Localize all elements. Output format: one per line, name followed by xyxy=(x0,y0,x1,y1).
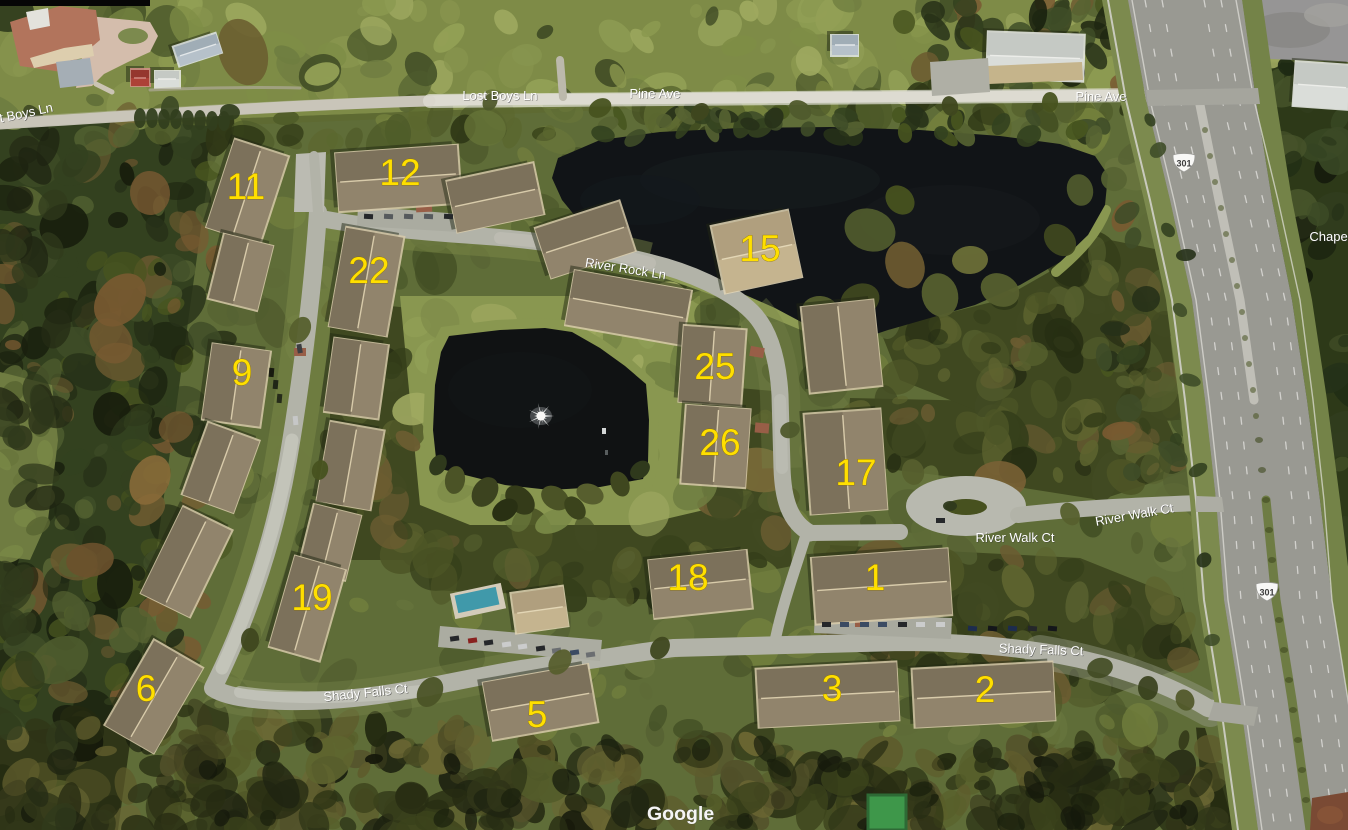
svg-text:5: 5 xyxy=(527,694,548,735)
svg-text:1: 1 xyxy=(865,557,886,598)
svg-text:Google: Google xyxy=(647,803,714,825)
svg-text:Pine Ave: Pine Ave xyxy=(629,86,680,101)
svg-text:26: 26 xyxy=(699,422,740,463)
svg-text:Chapel: Chapel xyxy=(1309,229,1348,244)
svg-text:Shady Falls Ct: Shady Falls Ct xyxy=(999,641,1084,659)
svg-text:River Walk Ct: River Walk Ct xyxy=(976,530,1055,545)
svg-text:12: 12 xyxy=(379,152,420,193)
svg-text:22: 22 xyxy=(348,250,389,291)
svg-text:Lost Boys Ln: Lost Boys Ln xyxy=(462,88,537,103)
svg-text:19: 19 xyxy=(291,577,332,618)
svg-text:301: 301 xyxy=(1176,159,1191,169)
svg-text:11: 11 xyxy=(227,166,265,207)
svg-text:15: 15 xyxy=(739,228,780,269)
svg-text:25: 25 xyxy=(694,346,735,387)
svg-text:2: 2 xyxy=(975,669,996,710)
svg-text:301: 301 xyxy=(1259,588,1274,598)
svg-text:18: 18 xyxy=(667,557,708,598)
svg-text:3: 3 xyxy=(822,668,843,709)
svg-text:17: 17 xyxy=(835,452,876,493)
svg-text:Pine Ave: Pine Ave xyxy=(1075,89,1126,104)
svg-text:6: 6 xyxy=(136,668,157,709)
svg-text:9: 9 xyxy=(232,352,253,393)
